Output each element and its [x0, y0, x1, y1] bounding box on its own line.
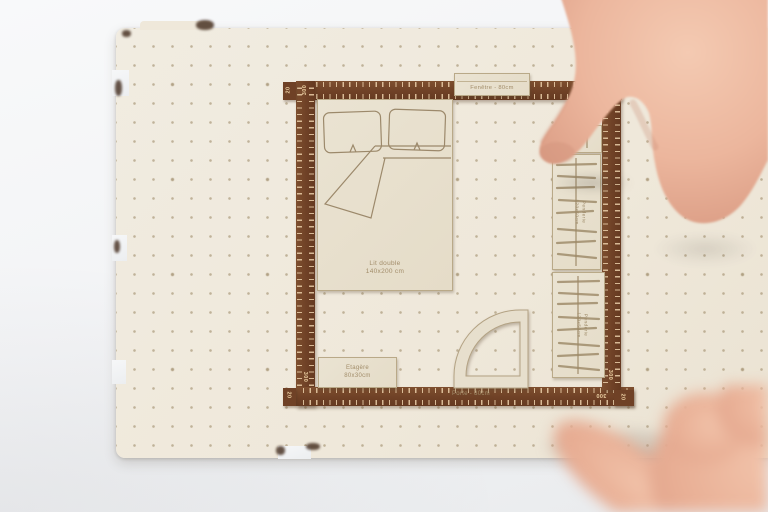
ruler-ticks [309, 83, 314, 404]
burn-mark [276, 446, 285, 455]
burn-mark [196, 20, 214, 30]
wardrobe-lower-label: Penderie 120x50cm [575, 312, 588, 337]
burn-mark [306, 443, 320, 450]
burn-mark [114, 240, 120, 253]
board-edge-notch [112, 360, 126, 384]
shelf-piece: Etagère 80x30cm [318, 357, 397, 388]
hand-bottom [520, 385, 768, 512]
ruler-number: 20 [285, 392, 291, 399]
ruler-ticks [297, 83, 302, 404]
bed-label-line1: Lit double [318, 260, 452, 268]
ruler-number: 300 [302, 85, 308, 95]
hand-top [505, 0, 768, 260]
photo-scene: 20 300 300 20 300 300 20 Fenêtre - 80cm … [0, 0, 768, 512]
ruler-number: 20 [285, 87, 291, 94]
door-sketch [452, 308, 530, 390]
door-piece: Porte - 80cm [452, 308, 530, 390]
shelf-label-line2: 80x30cm [319, 373, 396, 381]
wardrobe-lower-piece: Penderie 120x50cm [552, 272, 605, 378]
shelf-label-line1: Etagère [319, 365, 396, 373]
bed-label: Lit double 140x200 cm [318, 260, 452, 276]
shelf-label: Etagère 80x30cm [319, 365, 396, 380]
door-label: Porte - 80cm [452, 390, 530, 398]
wall-left [296, 81, 315, 406]
burn-mark [115, 80, 122, 96]
ruler-number: 300 [607, 370, 613, 380]
bed-label-line2: 140x200 cm [318, 268, 452, 276]
bed-piece: Lit double 140x200 cm [317, 99, 453, 291]
burn-mark [122, 30, 131, 37]
ruler-number: 300 [302, 372, 308, 382]
